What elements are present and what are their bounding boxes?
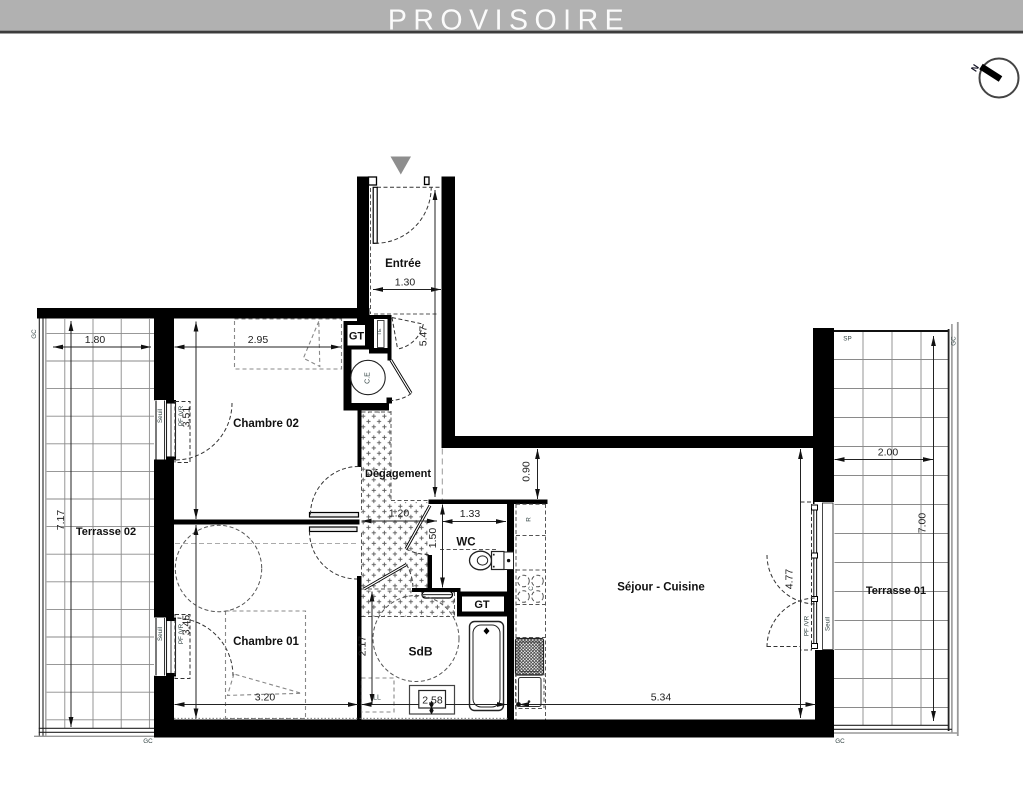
svg-text:WC: WC [456, 537, 475, 549]
svg-text:C: C [528, 586, 535, 591]
svg-text:PROVISOIRE: PROVISOIRE [388, 5, 630, 37]
svg-text:Séjour - Cuisine: Séjour - Cuisine [617, 582, 705, 594]
svg-text:3.20: 3.20 [255, 692, 276, 704]
svg-text:GC: GC [835, 738, 845, 745]
svg-text:C.E: C.E [365, 372, 372, 384]
svg-text:Dégagement: Dégagement [365, 468, 431, 480]
svg-text:0.90: 0.90 [521, 461, 533, 482]
svg-text:Terrasse 01: Terrasse 01 [866, 585, 926, 597]
svg-text:1.50: 1.50 [427, 528, 439, 549]
svg-text:GT: GT [349, 331, 365, 343]
svg-text:TE: TE [377, 328, 383, 335]
svg-text:Seuil: Seuil [157, 627, 164, 641]
svg-text:1.30: 1.30 [395, 277, 416, 289]
svg-text:3.45: 3.45 [181, 615, 193, 636]
svg-text:3.51: 3.51 [181, 407, 193, 428]
svg-text:Chambre 02: Chambre 02 [233, 418, 299, 430]
svg-text:Seuil: Seuil [157, 409, 164, 423]
svg-text:5.34: 5.34 [651, 692, 672, 704]
svg-text:SdB: SdB [409, 645, 433, 659]
svg-text:SP: SP [843, 336, 851, 343]
svg-text:GT: GT [474, 599, 490, 611]
svg-text:7.17: 7.17 [55, 510, 67, 531]
svg-text:4.77: 4.77 [784, 569, 796, 590]
svg-text:1.80: 1.80 [85, 334, 106, 346]
svg-text:5.47: 5.47 [418, 326, 430, 347]
svg-text:2.95: 2.95 [248, 334, 269, 346]
svg-text:GC: GC [31, 329, 38, 339]
svg-text:GC: GC [951, 336, 958, 346]
svg-text:1.33: 1.33 [460, 508, 481, 520]
svg-text:Chambre 01: Chambre 01 [233, 636, 299, 648]
svg-text:PF /VR: PF /VR [804, 615, 811, 636]
svg-text:2.00: 2.00 [878, 447, 899, 459]
svg-text:Seuil: Seuil [825, 617, 832, 631]
svg-text:1.20: 1.20 [389, 508, 410, 520]
svg-text:R: R [526, 517, 533, 522]
svg-text:2.17: 2.17 [357, 636, 369, 657]
svg-text:Terrasse 02: Terrasse 02 [76, 526, 136, 538]
svg-text:LL: LL [373, 695, 381, 702]
svg-text:7.00: 7.00 [917, 513, 929, 534]
svg-text:GC: GC [143, 738, 153, 745]
svg-text:Entrée: Entrée [385, 258, 421, 270]
